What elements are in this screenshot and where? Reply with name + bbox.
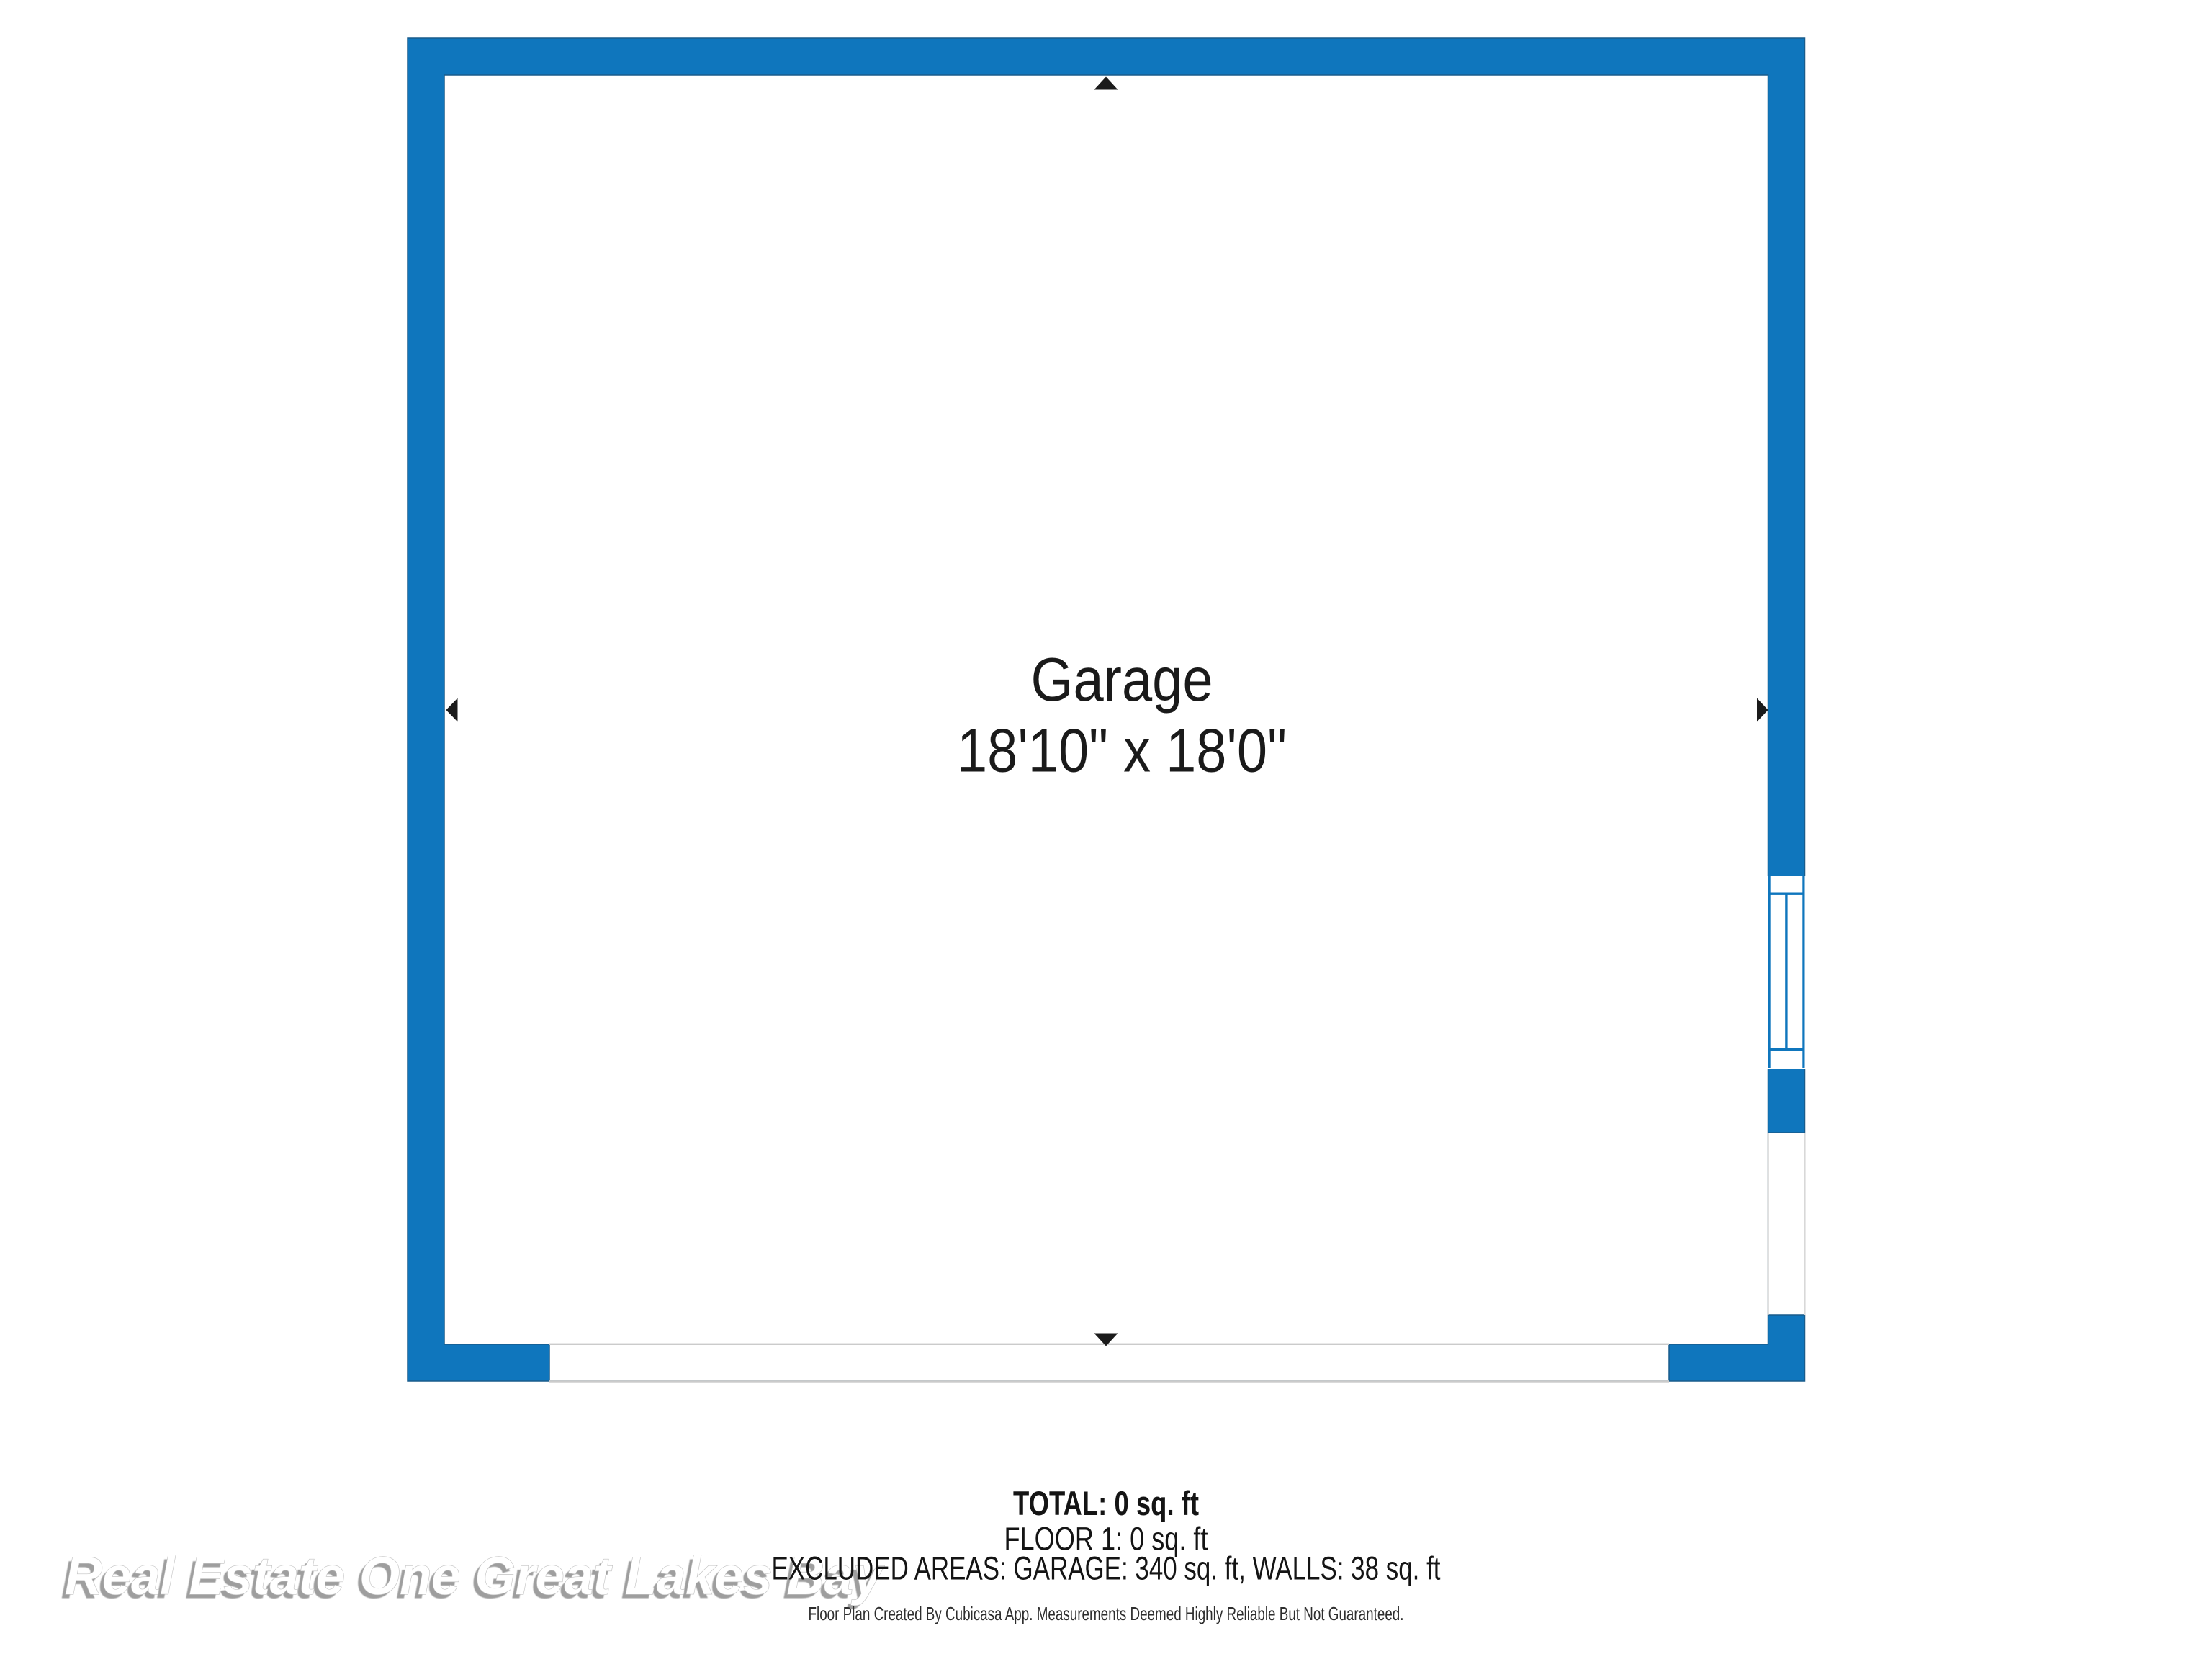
svg-text:TOTAL: 0 sq. ft: TOTAL: 0 sq. ft <box>1013 1484 1199 1522</box>
svg-text:Garage: Garage <box>1031 646 1213 714</box>
svg-text:EXCLUDED AREAS: GARAGE: 340 sq: EXCLUDED AREAS: GARAGE: 340 sq. ft, WALL… <box>772 1550 1441 1587</box>
svg-text:18'10" x 18'0": 18'10" x 18'0" <box>957 717 1287 786</box>
svg-text:Real Estate One Great Lakes Ba: Real Estate One Great Lakes Bay <box>65 1546 885 1606</box>
svg-text:Floor Plan Created By Cubicasa: Floor Plan Created By Cubicasa App. Meas… <box>809 1603 1404 1624</box>
